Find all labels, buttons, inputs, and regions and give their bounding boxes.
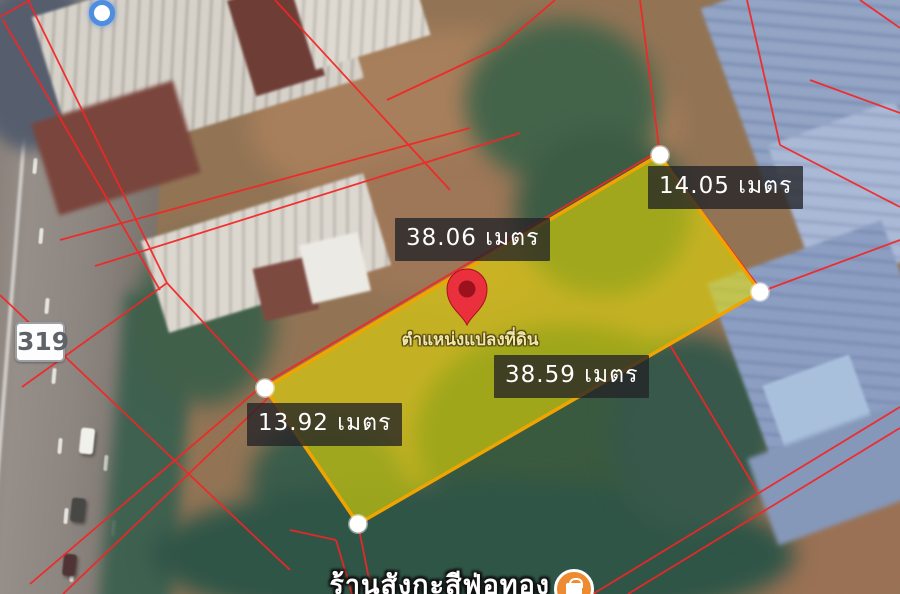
measurement-label-northwest: 38.06 เมตร [395, 218, 550, 261]
bag-icon [566, 583, 582, 594]
vertex-marker[interactable] [752, 284, 769, 301]
route-badge: 319 [15, 322, 65, 362]
place-label[interactable]: ร้านสังกะสีฟ่อทอง [318, 563, 550, 594]
gps-point-marker[interactable] [89, 0, 115, 26]
measurement-label-southeast: 38.59 เมตร [494, 355, 649, 398]
pin-caption: ตำแหน่งแปลงที่ดิน [340, 326, 600, 353]
vertex-marker[interactable] [652, 147, 669, 164]
satellite-map[interactable]: 38.06 เมตร 14.05 เมตร 38.59 เมตร 13.92 เ… [0, 0, 900, 594]
measurement-label-southwest: 13.92 เมตร [247, 403, 402, 446]
measurement-label-northeast: 14.05 เมตร [648, 166, 803, 209]
vertex-marker[interactable] [350, 516, 367, 533]
vertex-marker[interactable] [257, 380, 274, 397]
